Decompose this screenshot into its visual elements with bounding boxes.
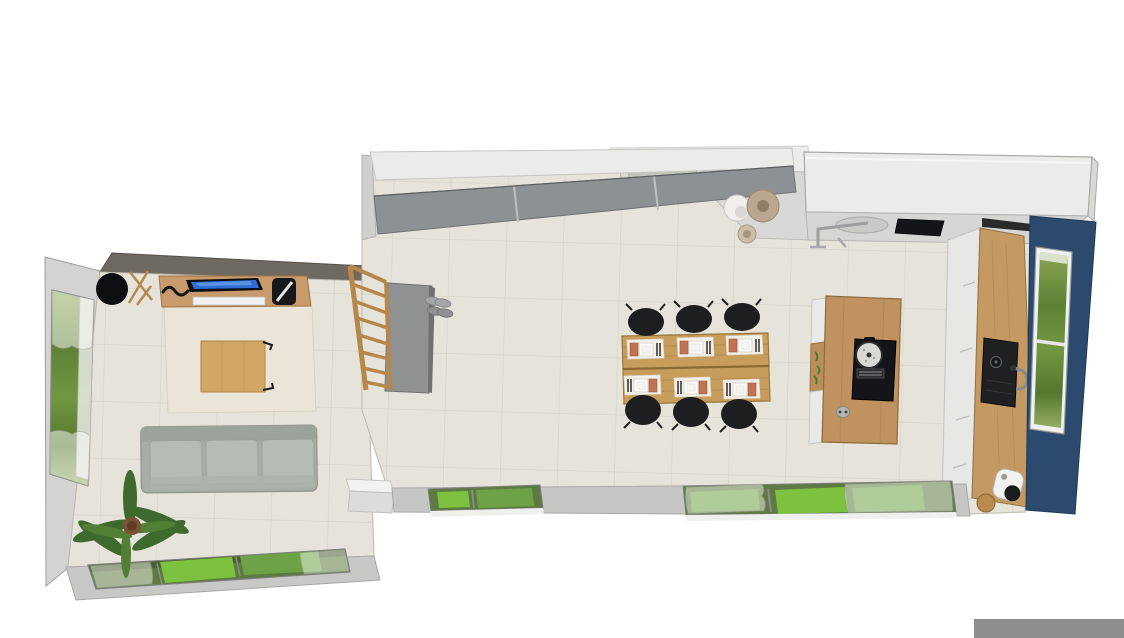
place-setting[interactable] [726,335,763,355]
drain-center [995,361,998,364]
navy-accent-wall [1026,216,1096,514]
napkin [649,379,657,392]
plate-center [687,384,695,391]
white-bench[interactable] [346,479,394,513]
kitchen-dining-room [346,146,1098,521]
place-setting[interactable] [723,379,760,399]
napkin [680,341,688,354]
grass-panel [476,488,534,508]
socket-hole [839,411,842,414]
living-room [45,253,380,600]
basket-center [757,200,769,212]
tall-white-cabinet-block[interactable] [804,152,1098,221]
palm-frond [121,530,131,578]
sheer-curtain [90,562,153,588]
black-speaker[interactable] [272,278,296,305]
island-side-panel [811,298,826,344]
place-setting[interactable] [677,337,714,357]
socket-hole [845,411,848,414]
grass-panel [775,487,848,514]
napkin [630,343,638,356]
sheer-curtain [845,481,953,513]
place-setting[interactable] [674,377,711,397]
pot-speckle [865,360,867,362]
sheer-curtain [52,290,94,349]
wood-sideboard[interactable] [159,276,311,307]
pot-speckle [873,357,875,359]
napkin [729,339,737,352]
right-wood-counter[interactable] [942,228,1034,512]
flat-tv[interactable] [186,278,263,292]
navy-wall-window[interactable] [1030,247,1072,434]
round-cutting-board[interactable] [977,494,995,512]
wood-coffee-table[interactable] [201,341,273,392]
plate-center [637,382,645,389]
palm-trunk-core [127,521,137,531]
grass-panel [437,491,470,508]
place-setting[interactable] [627,339,664,359]
garden-window-a[interactable] [428,485,544,517]
cropped-gray-object [974,619,1124,638]
sheer-curtain [300,549,349,574]
downdraft-vent [857,369,884,378]
round-black-chair[interactable] [96,273,128,305]
sideboard-drawer [193,297,265,305]
small-pot-center [743,230,751,238]
floorplan-canvas [0,0,1124,638]
faucet-base [1010,365,1016,371]
garden-window-b[interactable] [683,481,957,521]
plate-center [642,346,650,353]
sofa-seat-edge [150,475,314,490]
plate-center [692,344,700,351]
place-setting[interactable] [624,375,661,395]
floorplan-render [0,0,1124,638]
gray-three-seat-sofa[interactable] [141,425,318,493]
vase-shadow [735,206,747,218]
napkin [748,383,756,396]
plate-center [736,386,744,393]
plate-center [741,342,749,349]
island-socket[interactable] [837,407,850,418]
kitchen-island[interactable] [809,296,901,444]
bench-front [348,491,394,513]
sheer-curtain [685,484,765,514]
napkin [699,381,707,394]
wall-cooktop[interactable] [895,219,944,236]
pot-lid-knob [867,353,872,358]
left-wall-window[interactable] [50,290,94,486]
pot-speckle [863,349,865,351]
island-cooktop[interactable] [852,337,896,401]
